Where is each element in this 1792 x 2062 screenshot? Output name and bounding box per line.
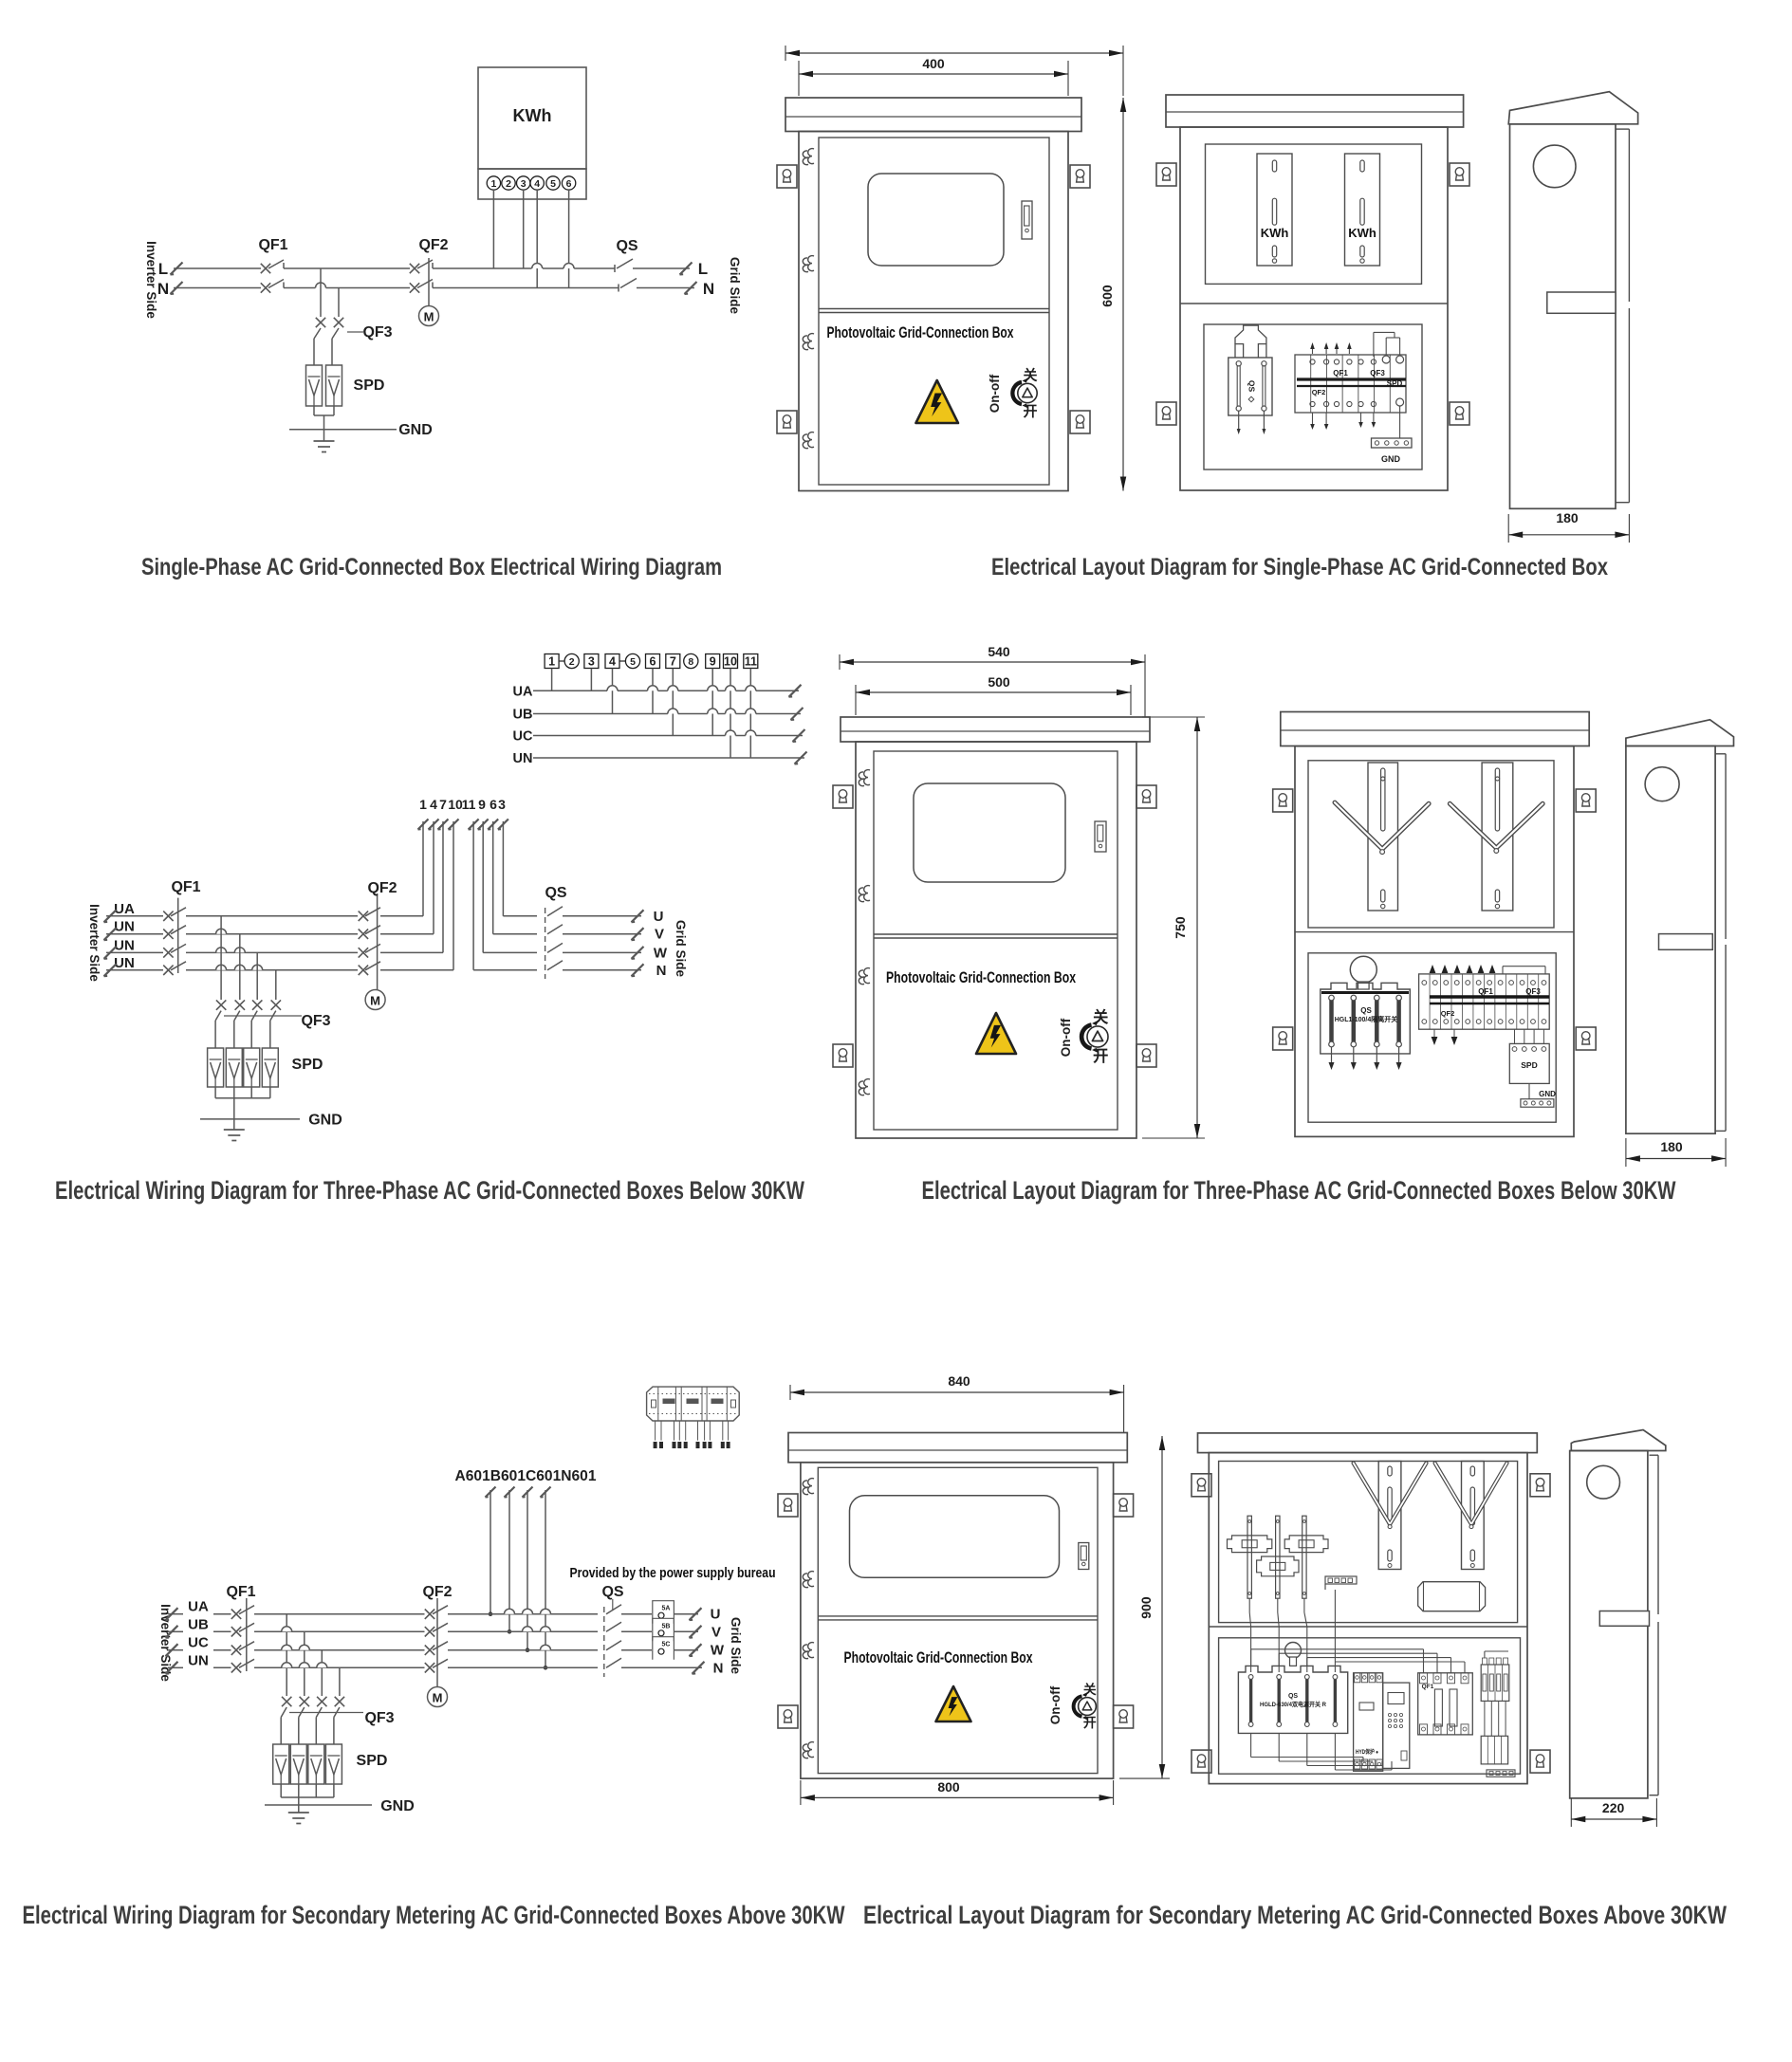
svg-text:UN: UN xyxy=(114,937,135,953)
svg-text:6: 6 xyxy=(650,654,656,668)
svg-text:M: M xyxy=(424,310,434,324)
svg-text:Grid Side: Grid Side xyxy=(729,1617,743,1675)
svg-text:220: 220 xyxy=(1602,1800,1625,1815)
svg-text:UC: UC xyxy=(188,1635,209,1651)
svg-text:Provided by the power supply b: Provided by the power supply bureau xyxy=(570,1565,776,1581)
svg-text:4: 4 xyxy=(534,178,540,190)
svg-text:开: 开 xyxy=(1093,1048,1108,1065)
svg-text:1: 1 xyxy=(490,178,496,190)
svg-text:QF3: QF3 xyxy=(301,1013,330,1029)
svg-text:Electrical Wiring Diagram for: Electrical Wiring Diagram for Secondary … xyxy=(23,1901,845,1929)
svg-text:9: 9 xyxy=(710,654,716,668)
svg-text:5: 5 xyxy=(550,178,556,190)
svg-text:UB: UB xyxy=(188,1616,209,1632)
svg-text:1: 1 xyxy=(419,797,427,812)
svg-text:Electrical Wiring Diagram for: Electrical Wiring Diagram for Three-Phas… xyxy=(55,1176,804,1205)
svg-text:V: V xyxy=(655,927,664,943)
svg-text:W: W xyxy=(711,1643,725,1659)
svg-text:3: 3 xyxy=(521,178,527,190)
svg-text:UN: UN xyxy=(513,751,533,766)
svg-text:Photovoltaic Grid-Connection B: Photovoltaic Grid-Connection Box xyxy=(844,1648,1033,1666)
svg-text:QF3: QF3 xyxy=(1525,987,1541,996)
svg-text:3: 3 xyxy=(588,654,595,668)
svg-text:SPD: SPD xyxy=(354,377,385,394)
svg-text:N: N xyxy=(656,963,667,979)
svg-text:V: V xyxy=(711,1624,721,1640)
svg-text:Grid Side: Grid Side xyxy=(728,257,742,315)
svg-text:QF1: QF1 xyxy=(226,1584,255,1600)
svg-text:10: 10 xyxy=(724,654,737,668)
svg-text:HGLD-630/4双电源开关 R: HGLD-630/4双电源开关 R xyxy=(1260,1700,1326,1708)
svg-text:KWh: KWh xyxy=(513,106,552,125)
svg-text:Grid Side: Grid Side xyxy=(674,920,688,978)
svg-text:HGL1-100/4隔离开关: HGL1-100/4隔离开关 xyxy=(1335,1015,1398,1023)
svg-text:QF2: QF2 xyxy=(1441,1009,1455,1018)
svg-text:QF1: QF1 xyxy=(171,879,200,895)
svg-text:5A: 5A xyxy=(662,1606,671,1612)
svg-text:SPD: SPD xyxy=(357,1753,388,1769)
svg-text:UA: UA xyxy=(188,1599,209,1615)
svg-text:UN: UN xyxy=(188,1652,209,1668)
svg-text:GND: GND xyxy=(308,1113,342,1129)
svg-text:QF1: QF1 xyxy=(1478,987,1493,996)
svg-text:GND: GND xyxy=(1381,454,1401,464)
svg-text:U: U xyxy=(654,909,664,925)
svg-text:QS: QS xyxy=(1247,380,1257,393)
svg-text:GND: GND xyxy=(380,1798,415,1814)
svg-text:900: 900 xyxy=(1138,1596,1154,1619)
svg-text:4: 4 xyxy=(430,797,437,812)
svg-text:7: 7 xyxy=(439,797,447,812)
svg-text:On-off: On-off xyxy=(988,374,1002,413)
svg-text:QS: QS xyxy=(1360,1006,1372,1015)
svg-text:6: 6 xyxy=(566,178,572,190)
svg-text:800: 800 xyxy=(937,1779,960,1795)
svg-text:4: 4 xyxy=(609,654,616,668)
svg-text:840: 840 xyxy=(948,1373,970,1389)
svg-text:QF2: QF2 xyxy=(367,880,397,896)
svg-text:7: 7 xyxy=(670,654,676,668)
svg-text:1: 1 xyxy=(548,654,555,668)
svg-text:540: 540 xyxy=(988,644,1010,659)
svg-text:500: 500 xyxy=(988,674,1010,690)
svg-text:UN: UN xyxy=(114,919,135,935)
svg-text:SPD: SPD xyxy=(1387,379,1403,388)
svg-text:QS: QS xyxy=(545,885,566,901)
svg-text:11: 11 xyxy=(745,654,757,668)
svg-text:UC: UC xyxy=(513,729,533,745)
svg-text:KWh: KWh xyxy=(1261,226,1289,240)
svg-text:Single-Phase AC Grid-Connected: Single-Phase AC Grid-Connected Box Elect… xyxy=(141,554,722,580)
svg-text:3: 3 xyxy=(498,797,506,812)
svg-text:8: 8 xyxy=(688,656,693,668)
svg-text:QF1: QF1 xyxy=(258,237,287,253)
svg-text:UN: UN xyxy=(114,955,135,971)
svg-text:11: 11 xyxy=(462,797,476,812)
svg-text:QS: QS xyxy=(1288,1693,1298,1700)
svg-text:QS: QS xyxy=(601,1584,623,1600)
svg-text:180: 180 xyxy=(1660,1139,1683,1154)
svg-text:Photovoltaic Grid-Connection B: Photovoltaic Grid-Connection Box xyxy=(827,323,1014,341)
svg-text:QF2: QF2 xyxy=(418,237,448,253)
svg-text:Electrical Layout Diagram for: Electrical Layout Diagram for Three-Phas… xyxy=(922,1176,1676,1205)
svg-text:A601B601C601N601: A601B601C601N601 xyxy=(455,1468,597,1484)
svg-text:5C: 5C xyxy=(662,1642,671,1648)
svg-text:L: L xyxy=(698,260,708,278)
svg-text:QF1: QF1 xyxy=(1422,1684,1434,1690)
svg-text:W: W xyxy=(654,945,668,961)
svg-text:QF1: QF1 xyxy=(1333,369,1348,377)
svg-text:Inverter Side: Inverter Side xyxy=(144,241,158,319)
svg-text:5: 5 xyxy=(630,656,636,668)
svg-text:N: N xyxy=(713,1660,724,1676)
svg-text:UA: UA xyxy=(114,901,135,917)
svg-text:UA: UA xyxy=(513,684,533,699)
svg-text:QF3: QF3 xyxy=(362,324,392,341)
svg-text:SPD: SPD xyxy=(292,1057,323,1073)
svg-text:QF3: QF3 xyxy=(364,1710,394,1726)
svg-text:180: 180 xyxy=(1556,510,1579,525)
svg-text:M: M xyxy=(370,994,380,1008)
svg-text:On-off: On-off xyxy=(1059,1018,1073,1057)
svg-text:GND: GND xyxy=(398,422,433,438)
svg-text:5B: 5B xyxy=(662,1623,671,1629)
svg-text:400: 400 xyxy=(922,56,945,71)
svg-text:KWh: KWh xyxy=(1348,226,1376,240)
svg-text:L: L xyxy=(158,260,168,278)
svg-text:6: 6 xyxy=(490,797,497,812)
svg-text:2: 2 xyxy=(569,656,575,668)
svg-text:750: 750 xyxy=(1173,916,1188,939)
svg-text:QF2: QF2 xyxy=(422,1584,452,1600)
svg-text:Inverter Side: Inverter Side xyxy=(87,904,102,982)
svg-text:开: 开 xyxy=(1083,1716,1097,1730)
svg-text:开: 开 xyxy=(1023,404,1037,420)
svg-text:Electrical Layout Diagram for: Electrical Layout Diagram for Single-Pha… xyxy=(991,554,1608,580)
svg-text:On-off: On-off xyxy=(1048,1685,1062,1724)
svg-text:600: 600 xyxy=(1099,285,1115,307)
svg-text:U: U xyxy=(711,1607,721,1623)
svg-text:Electrical Layout Diagram for: Electrical Layout Diagram for Secondary … xyxy=(863,1901,1727,1929)
svg-text:Photovoltaic Grid-Connection B: Photovoltaic Grid-Connection Box xyxy=(886,968,1076,986)
svg-text:QF2: QF2 xyxy=(1312,388,1326,396)
svg-text:HYD保护 ●: HYD保护 ● xyxy=(1356,1748,1378,1756)
svg-text:2: 2 xyxy=(506,178,511,190)
svg-text:QS: QS xyxy=(616,238,637,254)
svg-text:GND: GND xyxy=(1539,1090,1556,1098)
svg-text:M: M xyxy=(433,1691,443,1705)
svg-text:UB: UB xyxy=(513,708,533,723)
svg-text:9: 9 xyxy=(478,797,486,812)
svg-text:QF3: QF3 xyxy=(1370,369,1385,377)
svg-text:N: N xyxy=(703,280,714,298)
svg-text:SPD: SPD xyxy=(1521,1060,1537,1070)
